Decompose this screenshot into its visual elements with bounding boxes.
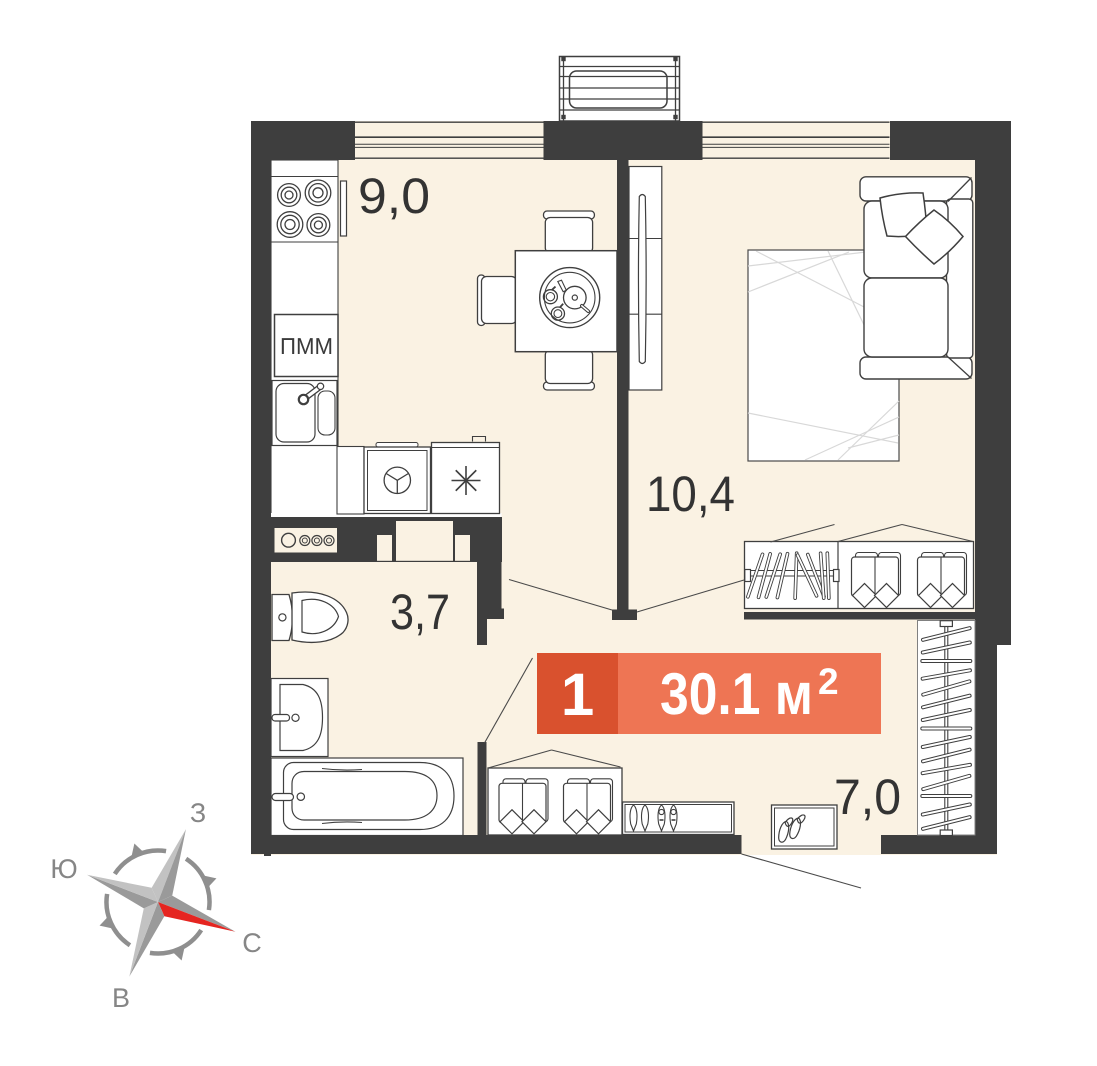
svg-text:2: 2 — [818, 661, 839, 702]
svg-text:Ю: Ю — [50, 854, 77, 884]
svg-text:3,7: 3,7 — [390, 584, 450, 640]
svg-text:30.1 м: 30.1 м — [660, 661, 813, 727]
svg-text:10,4: 10,4 — [646, 466, 735, 522]
svg-text:7,0: 7,0 — [834, 769, 901, 825]
svg-text:ПММ: ПММ — [280, 333, 333, 359]
svg-text:1: 1 — [561, 661, 594, 728]
svg-text:9,0: 9,0 — [358, 168, 430, 224]
svg-text:З: З — [190, 798, 206, 828]
svg-text:С: С — [242, 928, 262, 958]
svg-text:В: В — [112, 983, 130, 1013]
